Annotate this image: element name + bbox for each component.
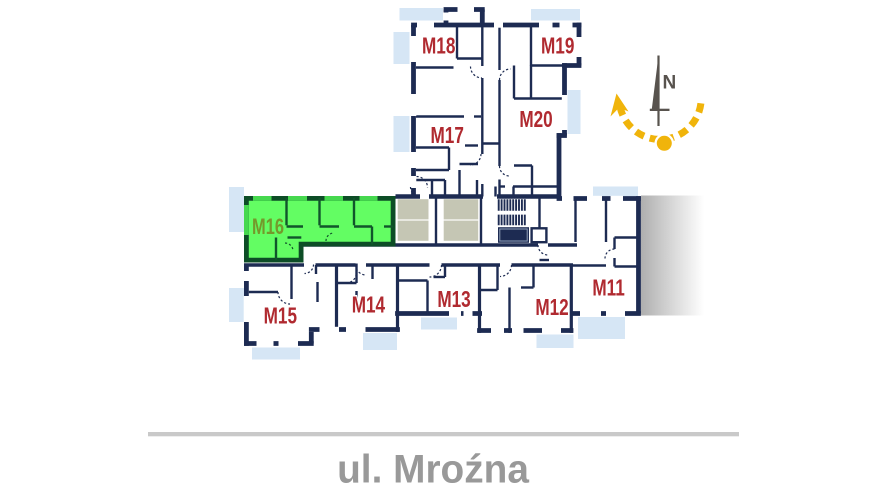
svg-text:M15: M15	[264, 303, 297, 329]
svg-text:M18: M18	[422, 33, 455, 59]
svg-text:ul. Mroźna: ul. Mroźna	[337, 447, 530, 492]
svg-text:M19: M19	[541, 33, 574, 59]
svg-text:N: N	[663, 73, 677, 94]
svg-text:M14: M14	[352, 292, 386, 318]
svg-text:M20: M20	[519, 107, 552, 133]
svg-text:M12: M12	[535, 294, 568, 320]
svg-text:M11: M11	[592, 275, 624, 301]
svg-text:M17: M17	[431, 122, 464, 148]
svg-text:M13: M13	[437, 286, 470, 312]
svg-text:M16: M16	[252, 215, 284, 240]
